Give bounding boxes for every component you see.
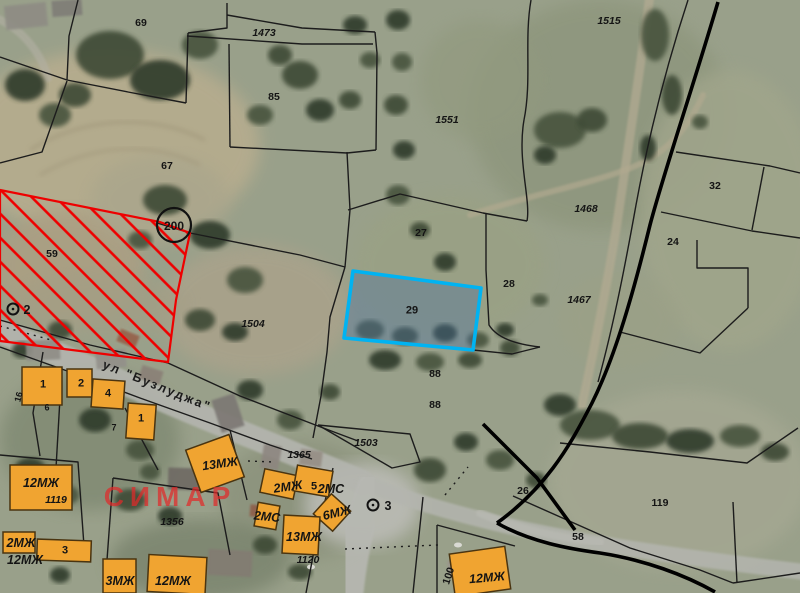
parcel-number-label: 1473 (252, 28, 275, 39)
parcel-number-label: 29 (406, 306, 418, 317)
utility-marker-dot (372, 504, 375, 507)
building-code-label: 2МЖ (7, 537, 36, 550)
company-watermark: СИМАР (104, 483, 237, 511)
parcel-number-label: 1119 (45, 495, 67, 506)
tree-cluster (666, 429, 714, 453)
building-code-label: 12МЖ (7, 554, 43, 567)
parcel-number-label: 1504 (241, 319, 264, 330)
tree-cluster (268, 45, 292, 65)
parcel-number-label: 59 (46, 249, 58, 260)
tree-cluster (761, 443, 789, 461)
building-number-label: 1 (40, 380, 46, 391)
building-number-label: 5 (311, 482, 317, 493)
tree-cluster (339, 91, 361, 109)
building-code-label: 2МС (318, 483, 344, 496)
marker-number-label: 2 (24, 304, 31, 317)
tree-cluster (544, 394, 576, 416)
tree-cluster (50, 567, 70, 583)
building-code-label: 13МЖ (286, 531, 322, 544)
parcel-number-label: 85 (268, 92, 280, 103)
parcel-number-label: 67 (161, 161, 173, 172)
tree-cluster (577, 108, 607, 132)
tree-cluster (532, 294, 548, 306)
tree-cluster (692, 115, 708, 129)
tree-cluster (253, 536, 277, 554)
tree-cluster (247, 105, 273, 125)
building-code-label: 2МС (253, 509, 281, 524)
parcel-number-label: 24 (667, 237, 679, 248)
roof (4, 2, 48, 30)
parcel-number-label: 1365 (287, 450, 310, 461)
tree-cluster (386, 10, 410, 30)
tree-cluster (641, 9, 669, 61)
tree-cluster (185, 309, 215, 331)
parcel-number-label: 26 (517, 486, 529, 497)
parcel-number-label: 1467 (567, 295, 590, 306)
building-number-label: 1 (138, 414, 144, 425)
parcel-number-label: 58 (572, 532, 584, 543)
building-code-label: 12МЖ (469, 570, 506, 586)
vehicle (454, 543, 462, 548)
parcel-number-label: 69 (135, 18, 147, 29)
parcel-boundary-line (229, 44, 230, 147)
utility-marker-dot (12, 308, 15, 311)
tree-cluster (662, 75, 682, 115)
tree-cluster (369, 350, 401, 370)
parcel-number-label: 27 (415, 228, 427, 239)
tree-cluster (277, 410, 303, 430)
tree-cluster (392, 53, 412, 71)
building-code-label: 12МЖ (23, 477, 59, 490)
parcel-number-label: 32 (709, 181, 721, 192)
building-number-label: 2 (78, 379, 84, 390)
cadastral-map-view: 6914738515156715515920032146827242814672… (0, 0, 800, 593)
parcel-number-label: 1356 (160, 517, 183, 528)
tree-cluster (393, 141, 415, 159)
parcel-number-label: 1468 (574, 204, 597, 215)
building-code-label: 12МЖ (155, 575, 191, 588)
parcel-number-label: 1503 (354, 438, 377, 449)
building-number-label: 4 (105, 389, 111, 400)
building-code-label: 3МЖ (106, 575, 135, 588)
marker-number-label: 3 (385, 500, 392, 513)
tree-cluster (282, 61, 318, 89)
parcel-number-label: 1120 (297, 555, 320, 566)
tree-cluster (384, 95, 408, 115)
field-patch (160, 245, 350, 375)
building-number-label: 3 (62, 546, 68, 557)
parcel-number-label: 28 (503, 279, 515, 290)
tree-cluster (454, 433, 478, 451)
parcel-number-label: 88 (429, 369, 441, 380)
tree-cluster (59, 83, 91, 107)
parcel-number-label: 1551 (435, 115, 458, 126)
tree-cluster (140, 464, 160, 480)
tree-cluster (534, 146, 556, 164)
tree-cluster (79, 408, 111, 432)
tree-cluster (126, 440, 154, 460)
tree-cluster (458, 352, 482, 368)
annotation-label: 7 (111, 424, 116, 433)
tree-cluster (612, 423, 668, 449)
annotation-label: 6 (44, 404, 49, 413)
parcel-number-label: 1515 (597, 16, 620, 27)
parcel-number-label: 88 (429, 400, 441, 411)
tree-cluster (306, 99, 334, 121)
parcel-number-label: 200 (164, 220, 184, 232)
tree-cluster (190, 221, 230, 249)
parcel-number-label: 119 (652, 498, 669, 509)
tree-cluster (720, 425, 760, 447)
tree-cluster (5, 69, 45, 101)
tree-cluster (227, 267, 263, 293)
tree-cluster (560, 410, 620, 440)
tree-cluster (434, 253, 456, 271)
